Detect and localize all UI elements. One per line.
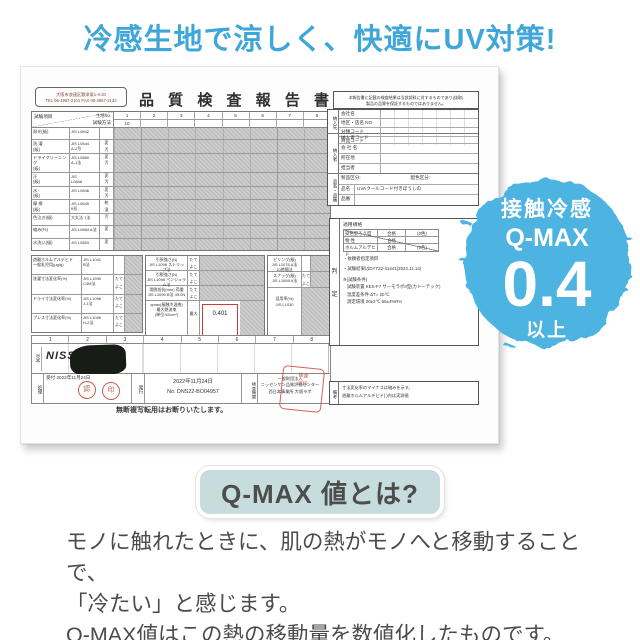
table-row: 摩 擦 (級) JIS L0849 II形 乾 湿 [32, 200, 330, 214]
table-row: 会社名 [339, 110, 478, 119]
approval-stamp: 認 [77, 380, 97, 400]
report-title: 品 質 検 査 報 告 書 [139, 89, 339, 110]
standard-grid: 染色堅ろう度 合格 (0色) 物 性 合格 [343, 229, 439, 252]
product-code-label: 品番 [339, 195, 355, 205]
redaction-blob [69, 344, 126, 376]
qmax-description: モノに触れたときに、肌の熱がモノへと移動することで、「冷たい」と感じます。Q-M… [66, 527, 596, 640]
table-row: 水 (級) JIS L0846 変 汚 [32, 187, 330, 201]
table-row: 引張強さ(N) JIS L1096 ストリップ法 たて よこ [146, 256, 264, 271]
remarks-text: 寸法変化率のマイナスは縮みを示す。 遊離ホルムアルデヒド( )内は実測値 [339, 382, 478, 404]
remarks-label: 備考 [330, 382, 339, 404]
judgement-label: 判 定 [330, 219, 340, 345]
table-row: 納入者コード [339, 134, 478, 144]
table-row: 耐光(級) JIS L0842 [32, 128, 330, 140]
qmax-badge: 接触冷感 Q-MAX 0.4 以上 [452, 167, 640, 357]
remarks-box: 備考 寸法変化率のマイナスは縮みを示す。 遊離ホルムアルデヒド( )内は実測値 [329, 381, 479, 405]
approval-stamp: 印 [101, 381, 121, 401]
qmax-value-highlight: 0.401 [202, 304, 238, 337]
sample-no-value: 10 [114, 120, 141, 128]
table-row: ピリング(級) JIS L1076 A法 10時間法 [268, 256, 330, 272]
table-row: プレス寸法変化率(%) JIS L1096 H-2法 たて よこ [32, 314, 142, 332]
receipt-cell: 受付 2022年11月24日 認 印 [44, 374, 132, 403]
report-number: No. DNS22-BO04957 [145, 387, 241, 397]
table-row: 縮み(%) JIS L0884 A法 変 [32, 226, 330, 238]
agency-label: 検査機関 [242, 374, 258, 403]
badge-value: 0.4 [503, 251, 592, 317]
product-name-label: 品名 [339, 185, 355, 195]
blend-ratio-label: 混用率(%) JIS L1030 [268, 288, 302, 340]
promo-image: 冷感生地で涼しく、快適にUV対策! 大阪市浪速区敷津東1-4-20 TEL 06… [0, 0, 640, 640]
column-numbers: 12345678 [114, 112, 330, 120]
copyright-note: 無断複写転用はお断りいたします。 [116, 405, 227, 415]
description-line: Q-MAX値はこの熱の移動量を数値化したものです。 [66, 620, 596, 640]
table-row: 汗 (級) JIS L0848 変 汚 [32, 173, 330, 187]
handling-label: 処理 [32, 374, 44, 403]
table-corner: 試験項目 生地No. 試験方法 [32, 112, 114, 127]
table-row: ドライ寸法変化率(%) JIS L1096 J-1法 たて よこ [32, 295, 142, 314]
table-row: 洗 濯 (級) JIS L0844 A-2号 変 汚 [32, 140, 330, 154]
product-label: 品名・品番 [328, 174, 339, 205]
supplier-label: 納入者 [328, 134, 339, 173]
issue-label: 発行 [132, 374, 145, 403]
dimension-table: 遊離ホルムアルデヒド 一般乳児用(μg/g) JIS L1041 B法 洗濯寸法… [31, 255, 143, 333]
table-row: 引裂強さ(N) JIS L1096 ペンジュラム法 たて よこ [146, 271, 264, 286]
description-line: モノに触れたときに、肌の熱がモノへと移動することで、 [66, 527, 596, 589]
table-row: スナッグ(級) JIS L1058 A法 たて よこ [268, 272, 330, 288]
table-row: 色泣き(級) 大丸法 1法 汚 [32, 214, 330, 226]
notice-box: 本報告書に記載の検査結果は当該試料に対するものであり(抜取) 製品の品質を保証す… [333, 91, 479, 109]
test-results-table: 試験項目 生地No. 試験方法 12345678 10 耐光(級) [31, 111, 331, 251]
method-label: 試験方法 [93, 120, 111, 126]
sample-no-label: 生地No. [96, 113, 111, 119]
issue-date: 2022年11月24日 [145, 377, 241, 387]
sample-no-row: 10 [114, 120, 330, 128]
buyer-section: 納入先 会社名地区・店名 NO分類コード商品コード [328, 110, 478, 134]
strength-table: 引張強さ(N) JIS L1096 ストリップ法 たて よこ 引裂強さ(N) J… [145, 255, 265, 341]
table-row: 所在地 [339, 154, 478, 164]
badge-line3: 以上 [526, 315, 568, 342]
test-rows: 耐光(級) JIS L0842 洗 濯 (級) JIS L0844 A-2号 変… [32, 128, 330, 250]
product-division: 製品区分: [339, 174, 409, 184]
badge-line1: 接触冷感 [501, 193, 593, 223]
receipt-label: 受付 [46, 375, 55, 380]
table-row: 水洗い(級) JIS L0853 変 [32, 239, 330, 250]
inspection-seal-stamp: 検査 済印 [279, 365, 325, 413]
table-row: 滑脱抵抗(mm) 荷重 JIS L1096 B法 49.0N たて よこ [146, 286, 264, 301]
table-row: 遊離ホルムアルデヒド 一般乳児用(μg/g) JIS L1041 B法 [32, 256, 142, 275]
inspection-report: 大阪市浪速区敷津東1-4-20 TEL 06-4957-2101 FAX 06-… [20, 66, 499, 444]
qmax-heading: Q-MAX 値とは? [196, 466, 444, 518]
issue-cell: 2022年11月24日 No. DNS22-BO04957 [145, 374, 242, 403]
item-label: 試験項目 [34, 114, 52, 120]
buyer-label: 納入先 [328, 110, 339, 133]
blend-ratio-cell: 混用率(%) JIS L1030 [268, 288, 330, 340]
table-row: ドライクリーニング (級) JIS L0860 A-1法 変 汚 [32, 154, 330, 173]
lab-address-box: 大阪市浪速区敷津東1-4-20 TEL 06-4957-2101 FAX 06-… [35, 87, 127, 107]
page-title: 冷感生地で涼しく、快適にUV対策! [0, 16, 640, 58]
receipt-date: 2022年11月24日 [56, 375, 90, 380]
table-row: 地区・店名 NO [339, 119, 478, 128]
specimen-label: 見本 [33, 347, 42, 371]
table-row: 洗濯寸法変化率(%) JIS L1930 C4M法 たて よこ [32, 275, 142, 294]
table-row: 会 社 名 [339, 144, 478, 154]
description-line: 「冷たい」と感じます。 [66, 589, 596, 620]
surface-table: ピリング(級) JIS L1076 A法 10時間法 スナッグ(級) JIS L… [267, 255, 331, 341]
footer-numbers: 12345678 [31, 335, 331, 344]
